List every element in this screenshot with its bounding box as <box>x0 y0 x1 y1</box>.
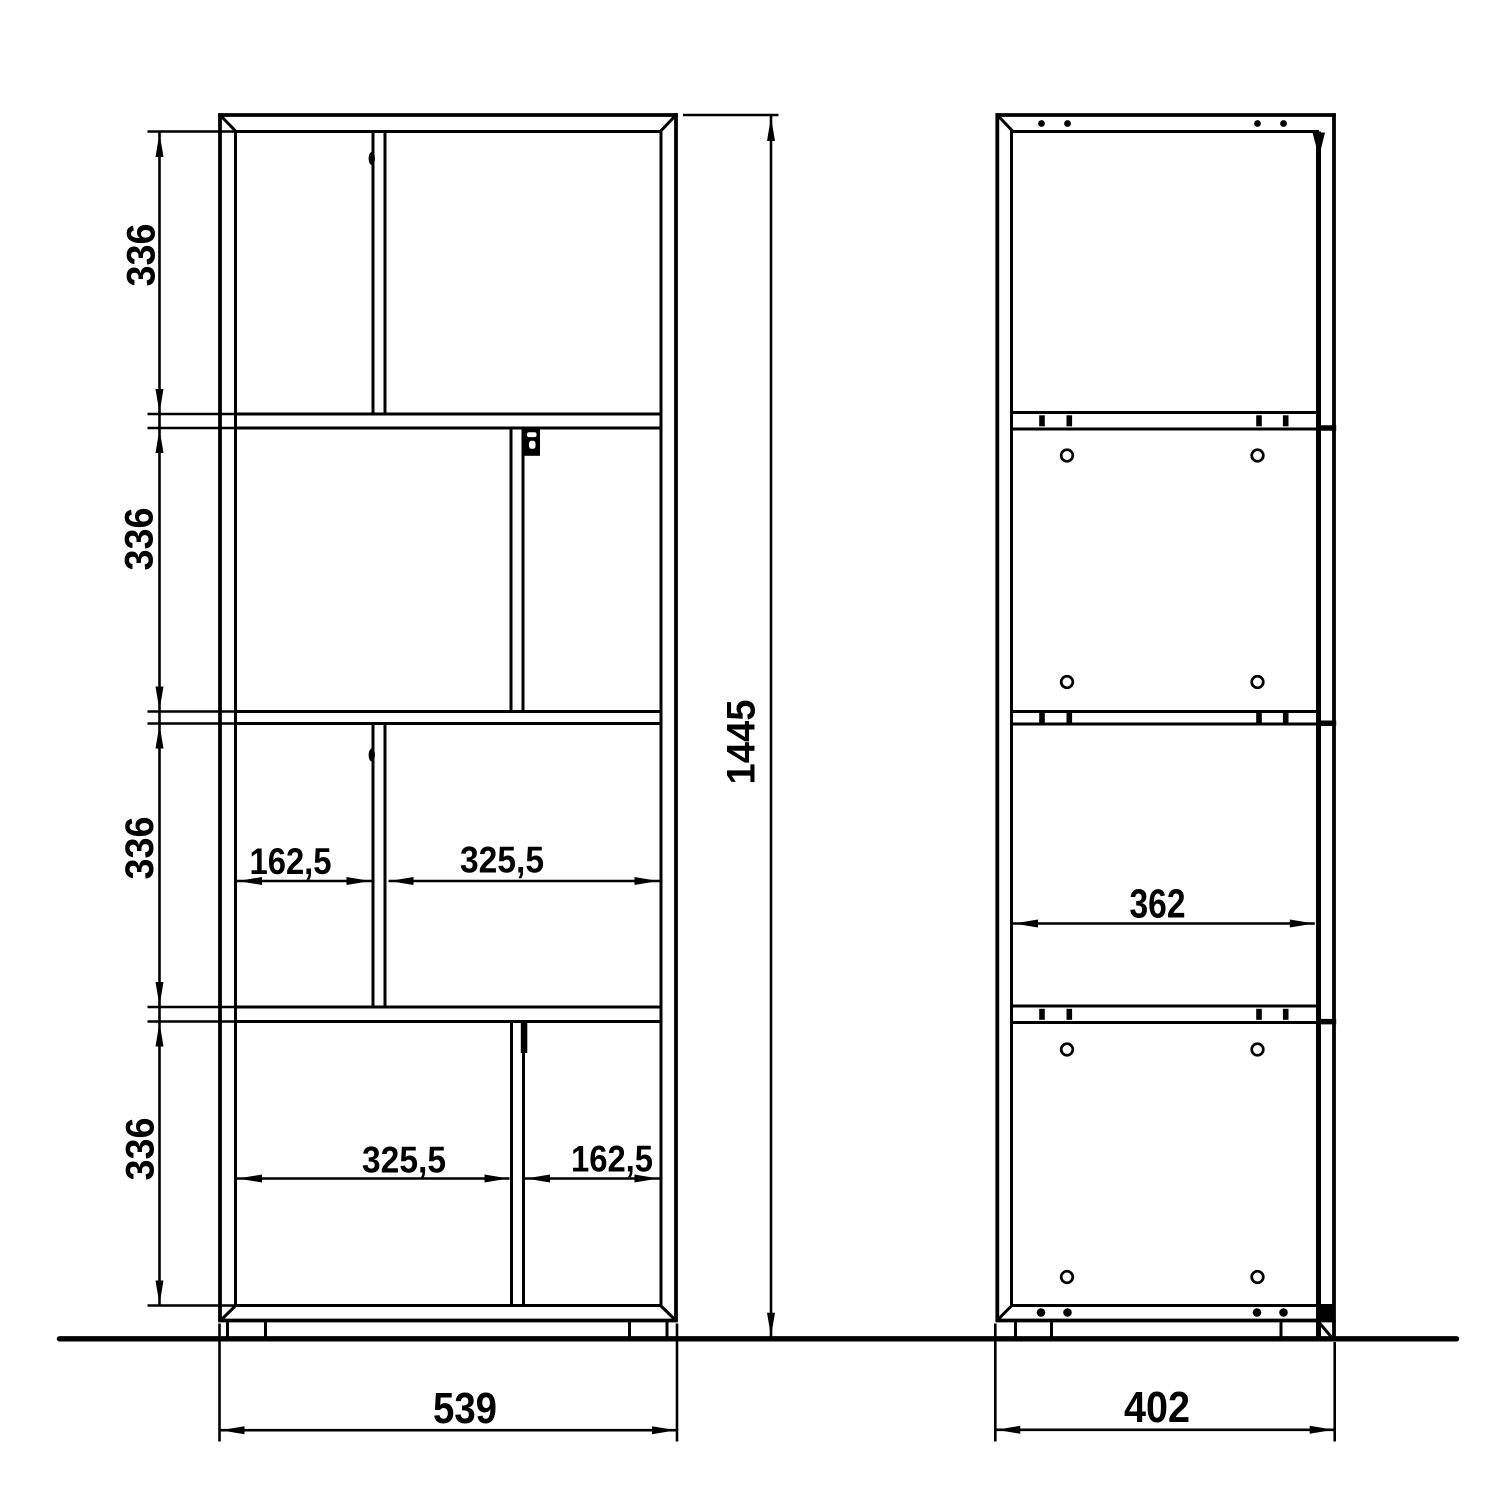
svg-text:325,5: 325,5 <box>460 839 544 881</box>
svg-text:336: 336 <box>118 817 162 880</box>
svg-text:336: 336 <box>119 1118 163 1181</box>
svg-text:336: 336 <box>118 508 162 571</box>
svg-text:162,5: 162,5 <box>571 1138 653 1180</box>
svg-text:362: 362 <box>1130 881 1186 927</box>
svg-text:539: 539 <box>433 1384 497 1433</box>
svg-text:402: 402 <box>1124 1383 1190 1432</box>
svg-text:162,5: 162,5 <box>250 840 332 882</box>
svg-text:336: 336 <box>120 224 164 287</box>
svg-text:1445: 1445 <box>720 700 764 785</box>
svg-text:325,5: 325,5 <box>362 1139 446 1181</box>
